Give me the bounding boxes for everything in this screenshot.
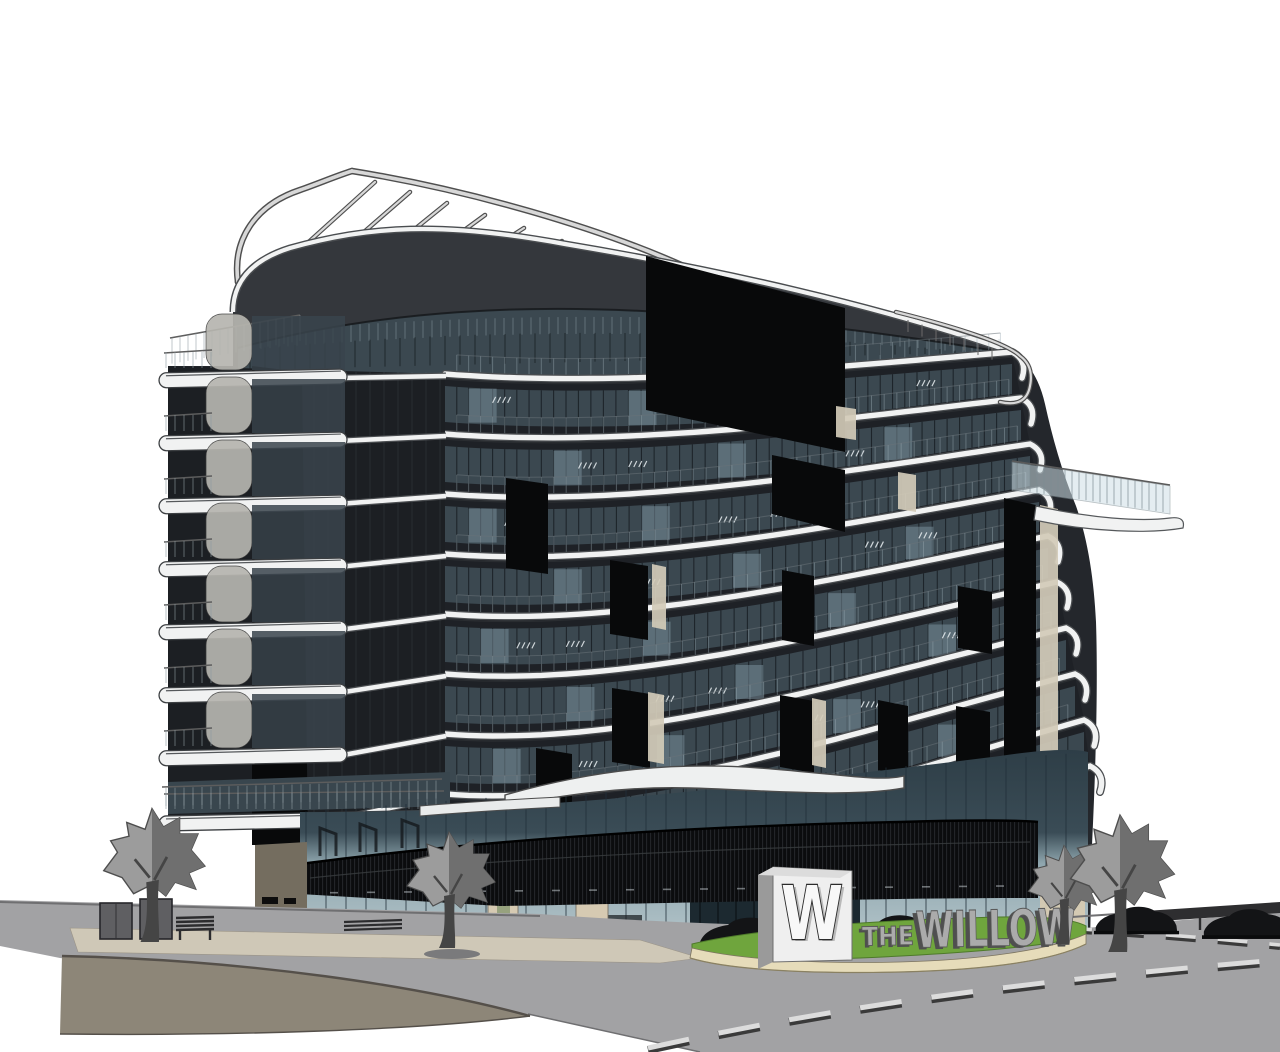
- render-canvas: W W THE THE WILLOW WILLOW .t-fol{fill:va…: [0, 0, 1280, 1052]
- sign-cube-side: [758, 867, 773, 969]
- monument-logo-w: W: [781, 871, 843, 957]
- left-balconies: [159, 314, 452, 845]
- sign-the: THE: [862, 922, 915, 953]
- architectural-rendering: W W THE THE WILLOW WILLOW .t-fol{fill:va…: [0, 0, 1280, 1052]
